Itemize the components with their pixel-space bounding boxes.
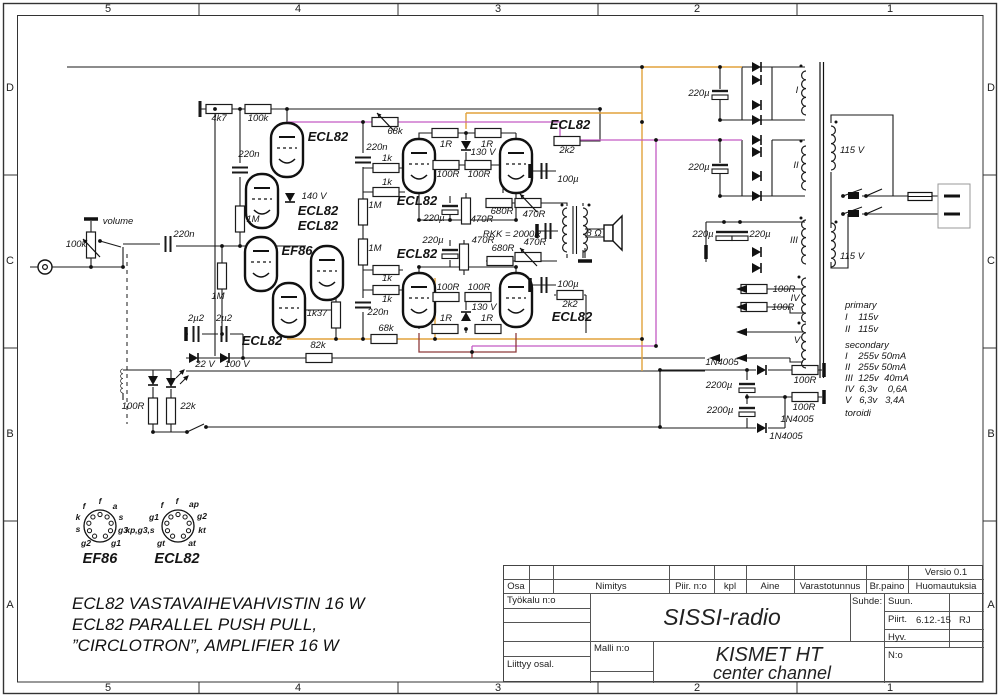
frame-row-label: A bbox=[987, 599, 994, 611]
schematic-label: 220µ bbox=[422, 213, 445, 224]
tube-ecl82 bbox=[271, 123, 303, 177]
schematic-label: 220µ bbox=[691, 229, 714, 240]
frame-col-label: 5 bbox=[105, 682, 111, 694]
frame-row-label: D bbox=[987, 82, 995, 94]
schematic-label: 680R bbox=[492, 243, 515, 254]
piirt-initials: RJ bbox=[959, 615, 971, 626]
liittyy-label: Liittyy osal. bbox=[507, 659, 554, 670]
schematic-label: 1k bbox=[382, 177, 393, 188]
schematic-label: IV 6,3v 0,6A bbox=[845, 384, 907, 395]
schematic-label: II 115v bbox=[845, 324, 879, 335]
doc-title-line2: center channel bbox=[713, 663, 831, 684]
schematic-label: ECL82 bbox=[242, 333, 283, 348]
schematic-label: 100µ bbox=[557, 174, 579, 185]
schematic-label: 100R bbox=[468, 282, 491, 293]
schematic-label: 1R bbox=[440, 139, 452, 150]
speaker bbox=[604, 216, 622, 250]
schematic-label: toroidi bbox=[845, 408, 872, 419]
frame-row-label: C bbox=[6, 255, 14, 267]
schematic-label: ECL82 bbox=[397, 193, 438, 208]
schematic-label: I 255v 50mA bbox=[845, 351, 906, 362]
schematic-label: 100R bbox=[793, 402, 816, 413]
col-piir-no: Piir. n:o bbox=[675, 581, 707, 592]
col-kpl: kpl bbox=[724, 581, 736, 592]
schematic-label: volume bbox=[103, 216, 134, 227]
schematic-label: at bbox=[188, 538, 197, 548]
schematic-label: g1 bbox=[110, 538, 121, 548]
schematic-label: 100R bbox=[437, 169, 460, 180]
schematic-label: 220n bbox=[172, 229, 194, 240]
schematic-label: III bbox=[790, 235, 798, 246]
frame-row-label: A bbox=[6, 599, 13, 611]
schematic-label: 220µ bbox=[421, 235, 444, 246]
schematic-label: secondary bbox=[845, 340, 890, 351]
hyv-label: Hyv. bbox=[888, 632, 906, 643]
schematic-label: 100R bbox=[122, 401, 145, 412]
schematic-label: f bbox=[99, 496, 103, 506]
pin-dot bbox=[105, 515, 109, 519]
schematic-label: f bbox=[176, 496, 180, 506]
schematic-label: 470R bbox=[524, 237, 547, 248]
frame-col-label: 4 bbox=[295, 3, 301, 15]
heater-winding bbox=[121, 369, 123, 393]
schematic-label: kt bbox=[198, 525, 207, 535]
tube-ecl82 bbox=[273, 283, 305, 337]
schematic-label: 1N4005 bbox=[769, 431, 803, 442]
components bbox=[38, 62, 970, 542]
frame-row-label: C bbox=[987, 255, 995, 267]
schematic-label: ECL82 bbox=[550, 117, 591, 132]
schematic-label: 1N4005 bbox=[705, 357, 739, 368]
schematic-label: 1k bbox=[382, 294, 393, 305]
schematic-label: kp,g3,s bbox=[125, 525, 155, 535]
schematic-label: 4k7 bbox=[211, 113, 227, 124]
pin-dot bbox=[171, 534, 175, 538]
schematic-label: EF86 bbox=[83, 551, 119, 567]
piirt-date: 6.12.-15 bbox=[916, 615, 951, 626]
project-name: SISSI-radio bbox=[663, 604, 781, 631]
frame-col-label: 1 bbox=[887, 3, 893, 15]
schematic-label: 1M bbox=[368, 200, 381, 211]
tyokalu-label: Työkalu n:o bbox=[507, 595, 556, 606]
schematic-label: 100µ bbox=[557, 279, 579, 290]
schematic-label: 100R bbox=[772, 302, 795, 313]
schematic-label: 68k bbox=[378, 323, 395, 334]
schematic-label: 1k bbox=[382, 273, 393, 284]
frame-col-label: 5 bbox=[105, 3, 111, 15]
schematic-label: 1M bbox=[368, 243, 381, 254]
schematic-label: s bbox=[119, 512, 124, 522]
frame-row-label: B bbox=[987, 428, 994, 440]
col-osa: Osa bbox=[507, 581, 524, 592]
schematic-label: f bbox=[161, 500, 165, 510]
tube-ecl82 bbox=[403, 273, 435, 327]
pin-dot bbox=[165, 529, 169, 533]
pin-dot bbox=[183, 515, 187, 519]
col-varastotunnus: Varastotunnus bbox=[800, 581, 861, 592]
schematic-label: 220µ bbox=[687, 162, 710, 173]
schematic-label: a bbox=[113, 501, 118, 511]
schematic-label: 22 V bbox=[194, 359, 216, 370]
schematic-label: f bbox=[83, 501, 87, 511]
pin-dot bbox=[91, 515, 95, 519]
pin-dot bbox=[176, 512, 180, 516]
title-block: Versio 0.1 Osa Nimitys Piir. n:o kpl Ain… bbox=[503, 565, 983, 682]
schematic-label: 1N4005 bbox=[780, 414, 814, 425]
schematic-label: 100R bbox=[794, 375, 817, 386]
schematic-label: g2 bbox=[80, 538, 91, 548]
schematic-label: ECL82 bbox=[308, 129, 349, 144]
col-huomautuksia: Huomautuksia bbox=[916, 581, 977, 592]
schematic-label: ECL82 bbox=[154, 551, 199, 567]
mains-plug bbox=[938, 184, 970, 228]
schematic-label: II bbox=[793, 160, 799, 171]
schematic-label: k bbox=[76, 512, 82, 522]
schematic-label: 680R bbox=[491, 206, 514, 217]
schematic-label: 2k2 bbox=[558, 145, 575, 156]
frame-col-label: 3 bbox=[495, 682, 501, 694]
pin-dot bbox=[181, 534, 185, 538]
schematic-label: 1k37 bbox=[307, 308, 328, 319]
schematic-label: ECL82 bbox=[298, 203, 339, 218]
note-line: ECL82 VASTAVAIHEVAHVISTIN 16 W bbox=[72, 593, 365, 614]
schematic-label: 2200µ bbox=[705, 380, 733, 391]
version-label: Versio 0.1 bbox=[925, 567, 967, 578]
pin-dot bbox=[87, 529, 91, 533]
pin-dot bbox=[186, 529, 190, 533]
col-nimitys: Nimitys bbox=[595, 581, 626, 592]
schematic-label: 1R bbox=[440, 313, 452, 324]
schematic-label: V bbox=[794, 335, 802, 346]
schematic-label: 100k bbox=[248, 113, 270, 124]
schematic-label: 1k bbox=[382, 153, 393, 164]
schematic-label: primary bbox=[844, 300, 878, 311]
schematic-label: I bbox=[796, 85, 799, 96]
frame-col-label: 2 bbox=[694, 3, 700, 15]
frame-col-label: 1 bbox=[887, 682, 893, 694]
schematic-label: 220n bbox=[366, 307, 388, 318]
schematic-label: 1M bbox=[211, 291, 224, 302]
suhde-label: Suhde: bbox=[852, 596, 882, 607]
schematic-label: EF86 bbox=[281, 243, 313, 258]
frame-col-label: 2 bbox=[694, 682, 700, 694]
schematic-label: g2 bbox=[196, 511, 207, 521]
tube-ecl82 bbox=[403, 139, 435, 193]
schematic-label: 220n bbox=[237, 149, 259, 160]
pin-dot bbox=[165, 521, 169, 525]
frame-row-label: D bbox=[6, 82, 14, 94]
schematic-label: 1R bbox=[481, 313, 493, 324]
schematic-label: II 255v 50mA bbox=[845, 362, 906, 373]
schematic-label: ECL82 bbox=[552, 309, 593, 324]
schematic-label: 115 V bbox=[840, 145, 866, 156]
tube-ecl82 bbox=[500, 139, 532, 193]
pin-dot bbox=[98, 512, 102, 516]
pin-dot bbox=[103, 534, 107, 538]
schematic-label: 115 V bbox=[840, 251, 866, 262]
led-arrows bbox=[176, 370, 188, 384]
junction-dots bbox=[89, 65, 787, 434]
pin-dot bbox=[187, 521, 191, 525]
schematic-label: 100 V bbox=[225, 359, 251, 370]
schematic-label: 140 V bbox=[302, 191, 328, 202]
pin-dot bbox=[93, 534, 97, 538]
schematic-label: ECL82 bbox=[397, 246, 438, 261]
frame-row-label: B bbox=[6, 428, 13, 440]
schematic-label: 100R bbox=[773, 284, 796, 295]
fuse bbox=[908, 193, 932, 201]
schematic-sheet: 4k7100k220n1Mvolume100k220n1M140 VECL82E… bbox=[0, 0, 1000, 697]
no-label: N:o bbox=[888, 650, 903, 661]
schematic-label: 220n bbox=[365, 142, 387, 153]
schematic-label: 82k bbox=[310, 340, 327, 351]
malli-label: Malli n:o bbox=[594, 643, 629, 654]
schematic-label: 220µ bbox=[748, 229, 771, 240]
power-switch[interactable] bbox=[185, 425, 208, 434]
note-line: ”CIRCLOTRON”, AMPLIFIER 16 W bbox=[72, 635, 365, 656]
schematic-label: 2µ2 bbox=[187, 313, 205, 324]
tube-ecl82 bbox=[500, 273, 532, 327]
schematic-label: ap bbox=[189, 499, 199, 509]
schematic-label: V 6,3v 3,4A bbox=[845, 395, 905, 406]
schematic-label: 100k bbox=[66, 239, 88, 250]
frame-col-label: 4 bbox=[295, 682, 301, 694]
note-line: ECL82 PARALLEL PUSH PULL, bbox=[72, 614, 365, 635]
schematic-label: 2200µ bbox=[706, 405, 734, 416]
schematic-label: 68k bbox=[387, 126, 404, 137]
schematic-label: 100R bbox=[437, 282, 460, 293]
schematic-label: s bbox=[76, 524, 81, 534]
col-brpaino: Br.paino bbox=[870, 581, 905, 592]
pin-dot bbox=[87, 521, 91, 525]
schematic-label: I 115v bbox=[845, 312, 879, 323]
rca-input-jack[interactable] bbox=[38, 260, 52, 274]
schematic-label: 130 V bbox=[472, 302, 498, 313]
tube-ef86 bbox=[311, 246, 343, 300]
frame-col-label: 3 bbox=[495, 3, 501, 15]
pin-dot bbox=[108, 529, 112, 533]
schematic-label: g1 bbox=[148, 512, 159, 522]
pin-dot bbox=[169, 515, 173, 519]
schematic-label: 1M bbox=[246, 214, 259, 225]
schematic-label: 130 V bbox=[471, 147, 497, 158]
schematic-label: 220µ bbox=[687, 88, 710, 99]
schematic-label: 470R bbox=[523, 209, 546, 220]
schematic-label: 8 Ω bbox=[586, 228, 601, 239]
tube-ecl82 bbox=[245, 237, 277, 291]
pin-dot bbox=[109, 521, 113, 525]
schematic-label: III 125v 40mA bbox=[845, 373, 909, 384]
schematic-label: 100R bbox=[468, 169, 491, 180]
piirt-label: Piirt. bbox=[888, 614, 907, 625]
schematic-label: ECL82 bbox=[298, 218, 339, 233]
suun-label: Suun. bbox=[888, 596, 913, 607]
schematic-label: 2µ2 bbox=[215, 313, 233, 324]
col-aine: Aine bbox=[760, 581, 779, 592]
schematic-label: 22k bbox=[179, 401, 197, 412]
amplifier-notes: ECL82 VASTAVAIHEVAHVISTIN 16 W ECL82 PAR… bbox=[72, 593, 365, 656]
schematic-label: gt bbox=[156, 538, 166, 548]
